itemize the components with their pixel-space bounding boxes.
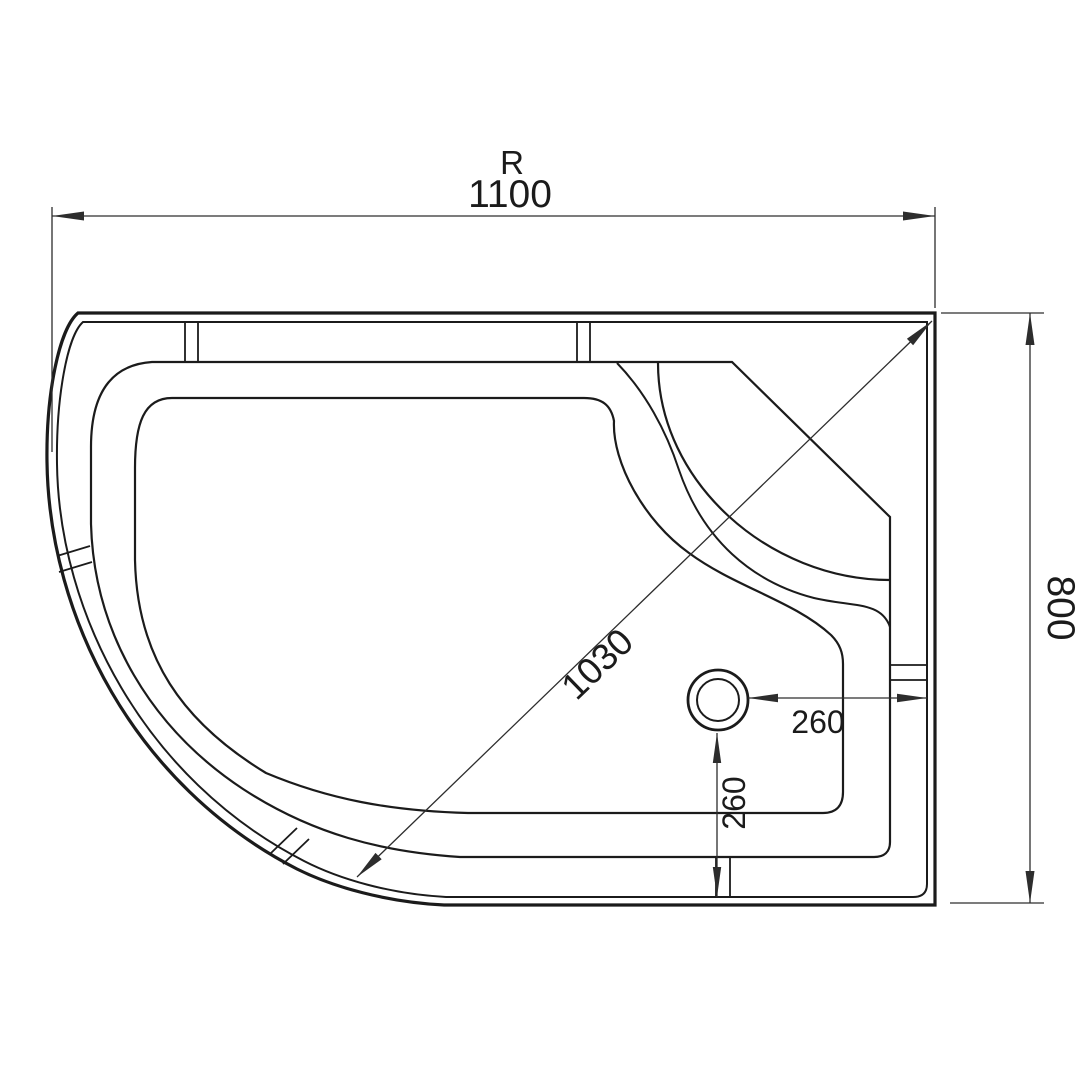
tray-rim-line bbox=[91, 362, 890, 857]
drain-h-arrow-right bbox=[897, 694, 927, 702]
drain-h-arrow-left bbox=[748, 694, 778, 702]
tick-right-side bbox=[891, 665, 926, 680]
basin-path bbox=[135, 398, 843, 813]
width-value: 1100 bbox=[468, 173, 552, 216]
tick-top-left bbox=[185, 323, 198, 361]
diagonal-value: 1030 bbox=[553, 621, 641, 708]
shower-tray-plan-drawing: R 1100 800 1030 260 bbox=[0, 0, 1080, 1080]
depth-arrow-bottom bbox=[1026, 871, 1035, 903]
depth-value: 800 bbox=[1039, 575, 1080, 640]
drawing-canvas: R 1100 800 1030 260 bbox=[0, 0, 1080, 1080]
depth-arrow-top bbox=[1026, 313, 1035, 345]
rim-inner-path bbox=[91, 362, 890, 857]
dimension-width: R 1100 bbox=[52, 144, 935, 452]
drain-inner-circle bbox=[697, 679, 739, 721]
dimension-depth: 800 bbox=[941, 313, 1080, 903]
outer-outline-inner-path bbox=[57, 322, 927, 897]
diagonal-arrow-top-right bbox=[907, 321, 932, 345]
dimension-drain-horizontal: 260 bbox=[748, 694, 927, 740]
tick-top-middle bbox=[577, 323, 590, 361]
tray-outer-edge bbox=[47, 313, 935, 905]
seat-area bbox=[617, 363, 890, 627]
basin-outline bbox=[135, 398, 843, 813]
diagonal-arrow-bottom-left bbox=[357, 853, 382, 877]
drain-v-arrow-top bbox=[713, 733, 721, 763]
drain-v-value: 260 bbox=[716, 776, 752, 829]
drain bbox=[688, 670, 748, 730]
dimension-drain-vertical: 260 bbox=[713, 733, 752, 897]
dimension-diagonal: 1030 bbox=[357, 321, 932, 877]
seat-inner-edge-curve bbox=[617, 363, 890, 627]
diagonal-dimension-line bbox=[357, 321, 932, 877]
drain-h-value: 260 bbox=[791, 704, 844, 740]
width-arrow-left bbox=[52, 212, 84, 221]
outer-outline-path bbox=[47, 313, 935, 905]
width-arrow-right bbox=[903, 212, 935, 221]
drain-v-arrow-bottom bbox=[713, 867, 721, 897]
